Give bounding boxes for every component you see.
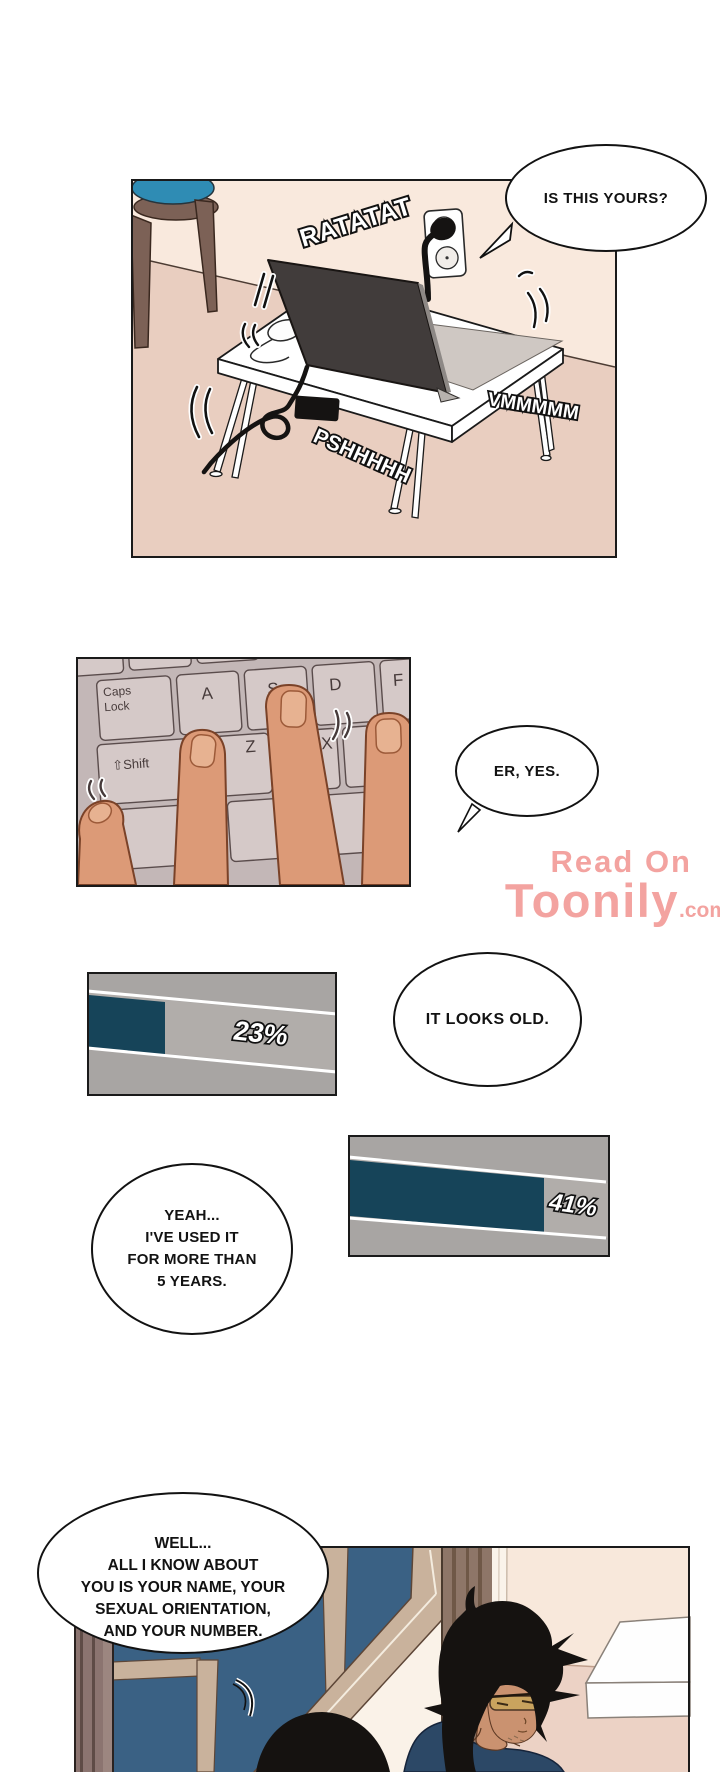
svg-text:Caps: Caps [103,683,132,699]
svg-text:RATATAT: RATATAT [297,192,416,253]
svg-text:D: D [329,675,343,695]
svg-text:Z: Z [245,737,257,757]
svg-text:Lock: Lock [104,698,131,714]
svg-text:A: A [201,684,214,704]
svg-text:23%: 23% [231,1015,291,1051]
svg-text:⇧Shift: ⇧Shift [112,755,150,773]
svg-text:F: F [392,670,404,690]
